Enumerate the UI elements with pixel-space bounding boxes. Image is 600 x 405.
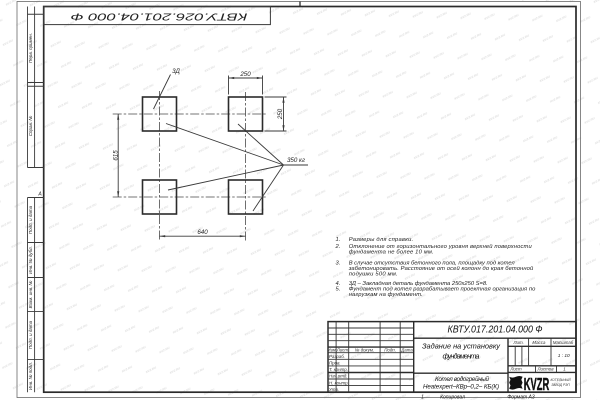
svg-text:фундамента не более 10 мм.: фундамента не более 10 мм. <box>349 250 434 256</box>
svg-text:Разраб.: Разраб. <box>329 354 345 359</box>
svg-text:Листов: Листов <box>537 367 555 372</box>
svg-text:Утв.: Утв. <box>329 387 339 392</box>
svg-text:1.: 1. <box>336 237 341 243</box>
svg-text:нагрузкам на фундамент.: нагрузкам на фундамент. <box>349 292 423 298</box>
svg-text:Взам. инв. №: Взам. инв. № <box>28 280 33 308</box>
svg-text:3Д: 3Д <box>172 68 180 75</box>
svg-text:А: А <box>37 192 42 198</box>
svg-text:Изм.: Изм. <box>327 348 336 353</box>
svg-text:Лист: Лист <box>509 367 522 372</box>
svg-text:№ докум.: № докум. <box>355 348 374 353</box>
svg-text:КОТЕЛЬНЫЙ: КОТЕЛЬНЫЙ <box>550 378 571 382</box>
svg-text:Н. контр.: Н. контр. <box>329 380 349 385</box>
svg-text:Подп. и дата: Подп. и дата <box>28 320 33 349</box>
svg-text:3.: 3. <box>336 260 341 266</box>
svg-text:Масса: Масса <box>532 340 546 345</box>
svg-text:Пров.: Пров. <box>329 361 341 366</box>
svg-text:Инв. № дубл.: Инв. № дубл. <box>28 246 33 274</box>
svg-text:Heatexpert–КВр–0,2– КБ(К): Heatexpert–КВр–0,2– КБ(К) <box>423 384 499 391</box>
svg-text:Задание на установку: Задание на установку <box>422 342 501 351</box>
svg-text:Формат А3: Формат А3 <box>507 394 535 400</box>
svg-text:Справ. №: Справ. № <box>28 116 33 137</box>
svg-text:подушки 500 мм.: подушки 500 мм. <box>349 271 398 277</box>
svg-text:640: 640 <box>197 229 208 236</box>
svg-text:250: 250 <box>277 108 284 120</box>
svg-text:1 : 10: 1 : 10 <box>558 353 570 359</box>
svg-text:Лит.: Лит. <box>513 340 524 345</box>
svg-text:615: 615 <box>113 150 120 161</box>
svg-text:Размеры для справки.: Размеры для справки. <box>349 237 414 243</box>
svg-text:Подп. и дата: Подп. и дата <box>28 205 33 234</box>
svg-text:1: 1 <box>421 394 424 400</box>
svg-text:ЗАВОД РЭП: ЗАВОД РЭП <box>551 383 570 387</box>
svg-text:Дата: Дата <box>400 348 413 353</box>
svg-text:250: 250 <box>239 71 251 78</box>
svg-text:Масштаб: Масштаб <box>553 340 574 345</box>
svg-text:5.: 5. <box>336 287 341 293</box>
svg-text:Инв. № подл.: Инв. № подл. <box>28 362 33 390</box>
svg-text:350 кг: 350 кг <box>287 157 305 164</box>
svg-text:Т. контр.: Т. контр. <box>329 367 348 372</box>
svg-text:Котел водогрейный: Котел водогрейный <box>435 376 490 383</box>
svg-text:KVZR: KVZR <box>524 374 550 394</box>
svg-text:Лист: Лист <box>336 348 349 353</box>
svg-text:2.: 2. <box>335 244 341 250</box>
svg-text:Копировал: Копировал <box>440 394 465 400</box>
svg-text:Перв. примен.: Перв. примен. <box>28 33 33 63</box>
svg-text:КВТУ.017.201.04.000 Ф: КВТУ.017.201.04.000 Ф <box>448 324 543 335</box>
svg-text:фундамента: фундамента <box>443 352 480 361</box>
svg-text:Нач.отд.: Нач.отд. <box>329 374 348 379</box>
svg-text:КВТУ.026.201.04.000 Ф: КВТУ.026.201.04.000 Ф <box>71 10 248 22</box>
svg-text:Подп.: Подп. <box>384 348 396 353</box>
